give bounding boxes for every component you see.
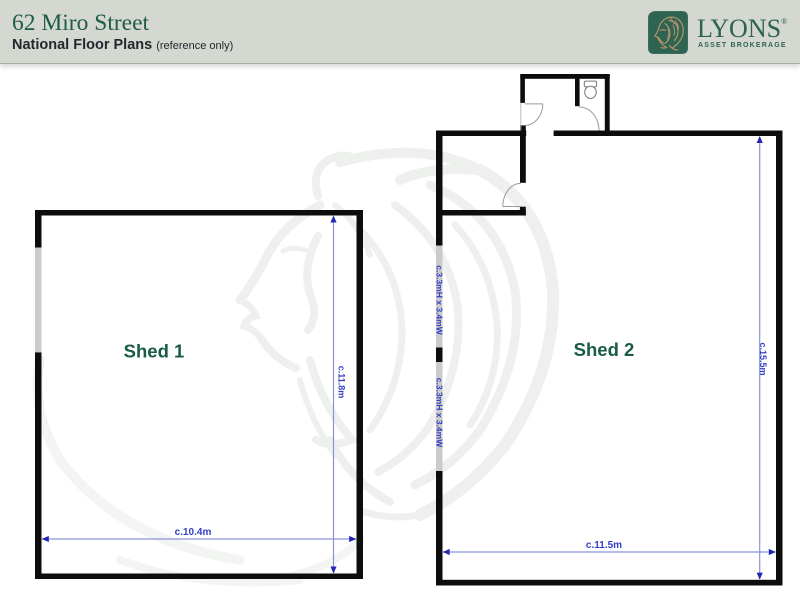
svg-text:Shed 2: Shed 2 <box>574 339 635 360</box>
svg-text:c.11.8m: c.11.8m <box>337 366 347 399</box>
svg-text:c.15.5m: c.15.5m <box>758 342 768 375</box>
svg-text:c.10.4m: c.10.4m <box>175 527 212 538</box>
svg-text:c.3.3mH x 3.4mW: c.3.3mH x 3.4mW <box>435 265 445 335</box>
svg-text:c.3.3mH x 3.4mW: c.3.3mH x 3.4mW <box>435 378 445 448</box>
svg-text:c.11.5m: c.11.5m <box>586 540 622 551</box>
svg-text:Shed 1: Shed 1 <box>124 341 185 362</box>
